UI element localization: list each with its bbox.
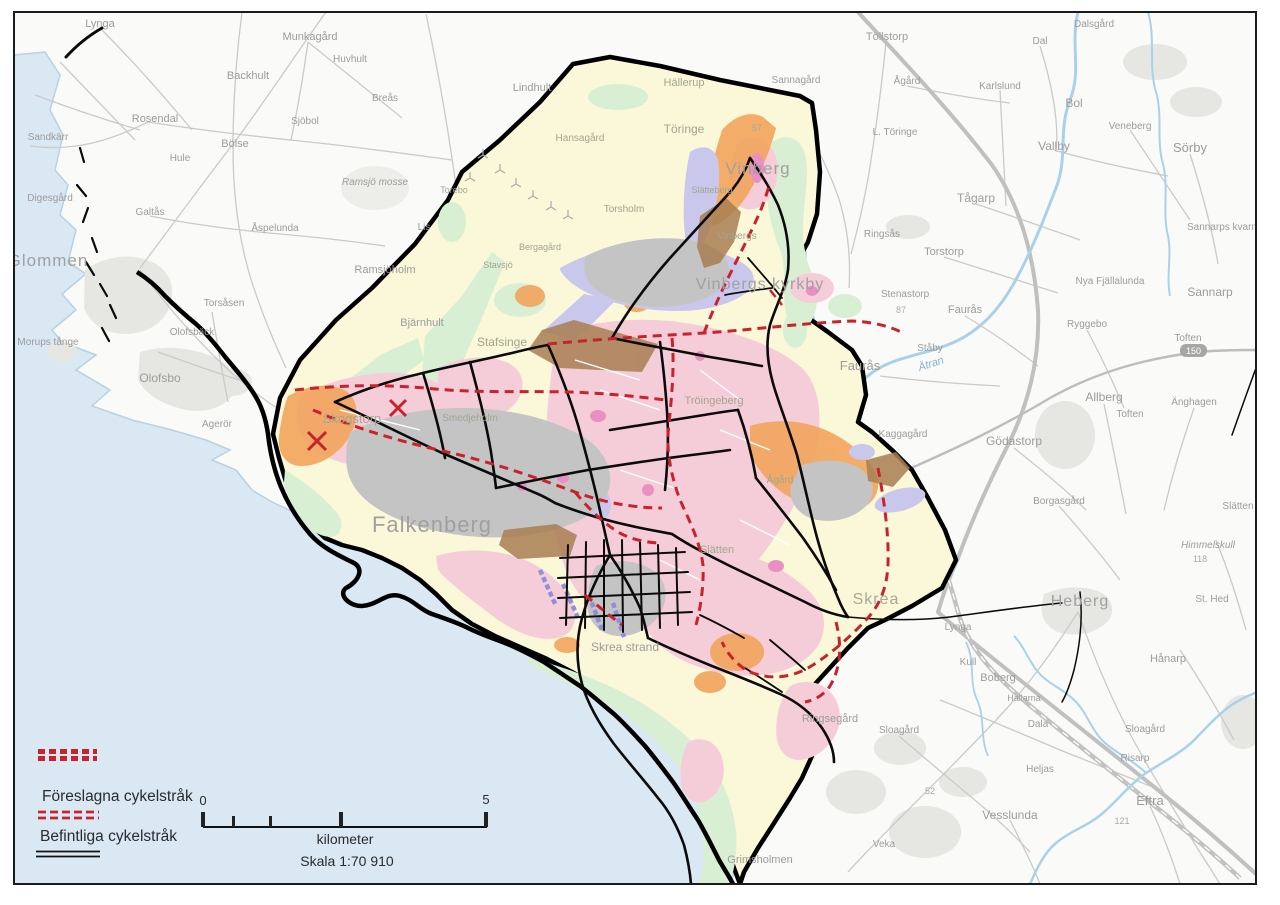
place-label-sloagård: Sloagård <box>1125 723 1165 735</box>
place-label-galtås: Galtås <box>136 206 165 218</box>
place-label-dal: Dal <box>1032 36 1047 47</box>
place-label-57: 57 <box>752 123 762 133</box>
place-label-torebo: Torebo <box>440 185 468 195</box>
place-label-vinbergs: Vinbergs <box>717 231 756 242</box>
place-label-veneberg: Veneberg <box>1109 121 1152 132</box>
place-label-lis: Lis <box>418 222 431 233</box>
place-label-boberg: Boberg <box>980 672 1015 684</box>
map-page: 150 LyngaMunkagårdHuvhultBackhultBreåsLi… <box>0 0 1280 905</box>
place-label-toften: Toften <box>1116 409 1143 420</box>
place-label-hule: Hule <box>170 153 191 164</box>
place-label-sloagård: Sloagård <box>879 724 919 736</box>
place-label-änghagen: Änghagen <box>1171 396 1217 408</box>
place-label-heberg: Heberg <box>1051 593 1109 610</box>
place-label-torsåsen: Torsåsen <box>204 297 245 309</box>
place-label-toften: Toften <box>1174 333 1201 344</box>
place-label-gödastorp: Gödastorp <box>986 434 1042 448</box>
place-label-sandkärr: Sandkärr <box>28 132 69 143</box>
place-label-sannarps-kvarn: Sannarps kvarn <box>1187 222 1257 233</box>
place-label-121: 121 <box>1114 816 1129 826</box>
place-label-tröingeberg: Tröingeberg <box>685 395 744 407</box>
place-label-bol: Bol <box>1065 96 1082 110</box>
place-label-heljas: Heljas <box>1026 764 1054 775</box>
place-label-kaggagård: Kaggagård <box>879 428 928 440</box>
scale-start-label: 0 <box>199 793 206 808</box>
place-label-olofsbo: Olofsbo <box>139 371 181 385</box>
place-label-vinbergs-kyrkby: Vinbergs kyrkby <box>696 276 825 293</box>
place-label-bjärnhult: Bjärnhult <box>400 317 443 329</box>
place-label-hällerup: Hällerup <box>664 77 705 89</box>
place-label-skrea: Skrea <box>853 591 900 608</box>
place-label-borgasgård: Borgasgård <box>1033 495 1085 507</box>
place-label-kull: Kull <box>960 657 977 668</box>
place-label-veka: Veka <box>873 839 896 850</box>
place-label-st-hed: St. Hed <box>1195 594 1228 605</box>
scale-ratio-label: Skala 1:70 910 <box>300 853 394 869</box>
place-label-eftra: Eftra <box>1136 793 1164 808</box>
place-label-stavsjö: Stavsjö <box>483 260 513 270</box>
road-shield-label: 150 <box>1186 346 1201 356</box>
place-label-huvhult: Huvhult <box>333 54 367 65</box>
place-label-falkenberg: Falkenberg <box>372 512 492 537</box>
place-label-hånarp: Hånarp <box>1150 653 1186 665</box>
place-label-backhult: Backhult <box>227 70 269 82</box>
place-label-vinberg: Vinberg <box>725 159 790 178</box>
place-label-sörby: Sörby <box>1173 140 1207 155</box>
place-label-ståby: Ståby <box>917 342 943 354</box>
place-label-ryggebo: Ryggebo <box>1067 319 1107 330</box>
scale-end-label: 5 <box>482 792 489 807</box>
place-label-bölse: Bölse <box>221 138 249 150</box>
place-label-ringsås: Ringsås <box>864 228 900 240</box>
legend-label-proposed: Föreslagna cykelstråk <box>42 788 193 805</box>
place-label-torsholm: Torsholm <box>604 204 645 215</box>
place-label-ringsegård: Ringsegård <box>802 713 858 725</box>
place-label-breås: Breås <box>372 92 398 104</box>
place-label-bergagård: Bergagård <box>519 242 561 252</box>
place-label-digesgård: Digesgård <box>27 192 73 204</box>
place-label-allberg: Allberg <box>1085 390 1122 404</box>
place-label-dala: Dala <box>1028 719 1049 730</box>
place-label-lynga: Lynga <box>85 18 115 30</box>
place-label-ramsjöholm: Ramsjöholm <box>354 264 415 276</box>
place-label-torstorp: Torstorp <box>924 246 964 258</box>
place-label-sannagård: Sannagård <box>772 74 821 86</box>
place-label-ågård: Ågård <box>767 473 794 486</box>
place-label-munkagård: Munkagård <box>282 31 337 43</box>
place-label-slätteberg: Slätteberg <box>691 185 732 195</box>
place-label-hallarna: Hallarna <box>1007 693 1041 703</box>
place-label-smedjeholm: Smedjeholm <box>442 413 498 424</box>
place-label-slätten: Slätten <box>700 544 734 556</box>
place-label-slätten: Slätten <box>1222 501 1253 512</box>
place-label-åspelunda: Åspelunda <box>251 221 299 234</box>
place-label-faurås: Faurås <box>948 304 983 316</box>
place-label-lynga: Lynga <box>945 622 972 633</box>
place-label-vesslunda: Vesslunda <box>982 808 1038 822</box>
place-label-vallby: Vallby <box>1038 139 1070 153</box>
place-label-töringe: Töringe <box>664 122 705 136</box>
place-label-skrea-strand: Skrea strand <box>591 640 659 654</box>
place-label-töllstorp: Töllstorp <box>866 31 908 43</box>
place-label-agerör: Agerör <box>202 419 233 430</box>
place-label-tågarp: Tågarp <box>957 191 995 205</box>
place-label-sannarp: Sannarp <box>1187 285 1233 299</box>
place-label-ramsjö-mosse: Ramsjö mosse <box>342 177 409 188</box>
place-label-olofsbäck: Olofsbäck <box>170 327 215 338</box>
place-label-dalsgård: Dalsgård <box>1074 18 1114 30</box>
place-label-l-töringe: L. Töringe <box>873 127 918 138</box>
place-label-glommen: Glommen <box>8 251 89 270</box>
place-label-grimsholmen: Grimsholmen <box>727 854 792 866</box>
place-label-ågård: Ågård <box>894 74 921 87</box>
legend-label-existing: Befintliga cykelstråk <box>40 828 177 845</box>
place-label-118: 118 <box>1193 554 1207 564</box>
place-label-87: 87 <box>896 305 906 315</box>
place-label-morups-tånge: Morups tånge <box>17 336 79 348</box>
road-shield-150: 150 <box>1180 344 1207 357</box>
place-label-sjöbol: Sjöbol <box>291 116 319 127</box>
scale-unit-label: kilometer <box>317 831 374 847</box>
place-label-stenastorp: Stenastorp <box>881 289 930 300</box>
place-label-rosendal: Rosendal <box>132 113 178 125</box>
place-label-nya-fjällalunda: Nya Fjällalunda <box>1076 276 1145 287</box>
place-label-hansagård: Hansagård <box>556 132 605 144</box>
place-label-lindhult: Lindhult <box>513 82 552 94</box>
place-label-stafsinge: Stafsinge <box>477 335 527 349</box>
place-label-52: 52 <box>925 786 935 796</box>
place-label-skogstorp: Skogstorp <box>323 411 382 426</box>
place-label-risarp: Risarp <box>1121 753 1150 764</box>
map-canvas: 150 LyngaMunkagårdHuvhultBackhultBreåsLi… <box>0 0 1280 905</box>
place-label-himmelskull: Himmelskull <box>1181 540 1236 551</box>
place-label-karlslund: Karlslund <box>979 81 1021 92</box>
place-label-faurås: Faurås <box>840 358 881 373</box>
